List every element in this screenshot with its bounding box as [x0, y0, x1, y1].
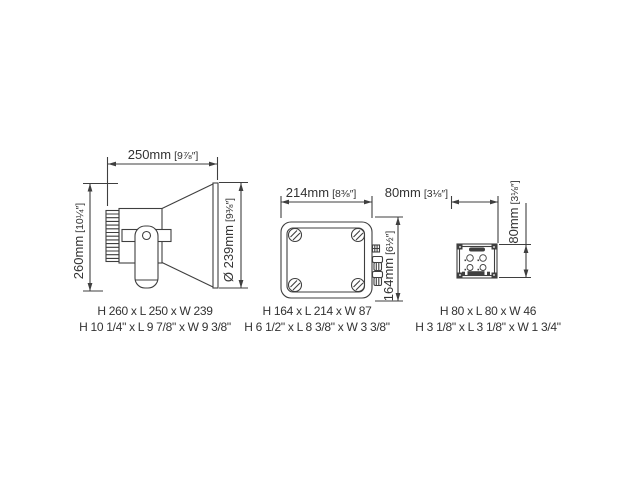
dimension-inch-value: [9⅞″]	[174, 149, 198, 164]
knob	[467, 255, 474, 262]
control-unit-outline	[457, 244, 497, 278]
horn-height-dimension	[83, 184, 118, 292]
screw-dot	[493, 274, 495, 276]
dimension-mm-value: 80mm	[385, 185, 421, 200]
arrowhead	[239, 280, 244, 288]
screw-hatch	[354, 231, 364, 241]
arrowhead	[88, 184, 93, 192]
unit-top-label-bar	[469, 248, 485, 252]
knob	[480, 265, 486, 271]
box-height-dimension-label: 164mm[6½″]	[381, 231, 397, 301]
horn-height-dimension-label: 260mm[10¼″]	[71, 195, 87, 287]
unit-width-dimension	[451, 196, 498, 243]
horn-width-dimension-label: 250mm[9⅞″]	[108, 147, 218, 164]
screw-circle	[289, 279, 302, 292]
arrowhead	[524, 245, 529, 253]
dimension-inch-value: [3⅛″]	[508, 180, 523, 204]
gland-ribs	[376, 263, 379, 271]
cable-gland-small	[373, 245, 380, 252]
knob-mark	[465, 260, 467, 262]
control-unit-caption: H 80 x L 80 x W 46 H 3 1/8" x L 3 1/8" x…	[382, 304, 594, 335]
screw-circle	[352, 229, 365, 242]
box-width-dimension-label: 214mm[8⅜″]	[271, 185, 371, 202]
screw-circle	[352, 279, 365, 292]
dimension-mm-value: 214mm	[286, 185, 329, 200]
side-mark	[462, 272, 465, 275]
arrowhead	[396, 217, 401, 225]
horn-rib-lines	[106, 214, 119, 258]
side-mark	[487, 272, 490, 275]
screw-dot	[459, 274, 461, 276]
knob	[467, 265, 473, 271]
screw-dot	[459, 246, 461, 248]
corner-screw	[352, 229, 365, 242]
horn-speaker-outline	[106, 183, 218, 288]
dimension-mm-value: 250mm	[128, 147, 171, 162]
arrowhead	[451, 200, 459, 205]
gland-ribs	[373, 245, 380, 252]
screw-hatch	[291, 281, 301, 291]
unit-bottom-label-bar	[462, 271, 490, 275]
corner-screw	[352, 279, 365, 292]
knob-mark	[478, 269, 480, 271]
technical-drawing-canvas	[0, 0, 640, 480]
dimension-inch-value: [9⅜″]	[223, 198, 238, 222]
knob-mark	[478, 260, 480, 262]
dimension-inch-value: [3⅛″]	[424, 187, 448, 202]
screw-hatch	[354, 281, 364, 291]
corner-screw	[289, 279, 302, 292]
screw-hatch	[291, 231, 301, 241]
knob	[480, 255, 487, 262]
technical-drawing-page: 250mm[9⅞″] 260mm[10¼″] Ø 239mm[9⅜″] 214m…	[0, 0, 640, 480]
caption-metric: H 80 x L 80 x W 46	[382, 304, 594, 320]
dimension-inch-value: [8⅜″]	[332, 187, 356, 202]
label-bar	[468, 271, 485, 275]
horn-flare-top	[162, 184, 213, 209]
unit-height-dimension-label: 80mm[3⅛″]	[506, 180, 522, 244]
gland-ribs	[376, 278, 379, 286]
amplifier-box-outline	[281, 222, 383, 298]
arrowhead	[524, 270, 529, 278]
corner-screw	[289, 229, 302, 242]
dimension-mm-value: 80mm	[506, 208, 521, 244]
dimension-inch-value: [6½″]	[383, 231, 398, 255]
arrowhead	[239, 183, 244, 191]
caption-imperial: H 3 1/8" x L 3 1/8" x W 1 3/4"	[382, 320, 594, 336]
dimension-mm-value: 260mm	[71, 236, 86, 279]
box-inner-lid	[287, 228, 365, 292]
dimension-inch-value: [10¼″]	[73, 203, 88, 233]
screw-dot	[493, 246, 495, 248]
arrowhead	[88, 283, 93, 291]
horn-width-dimension	[108, 157, 218, 206]
horn-bracket-pivot-knob	[143, 232, 151, 240]
dimension-mm-value: Ø 239mm	[221, 225, 236, 282]
horn-mouth-rim	[213, 183, 218, 288]
unit-width-dimension-label: 80mm[3⅛″]	[380, 185, 448, 202]
horn-flare-bottom	[162, 263, 213, 288]
horn-diameter-dimension-label: Ø 239mm[9⅜″]	[221, 192, 237, 288]
arrowhead	[490, 200, 498, 205]
dimension-mm-value: 164mm	[381, 258, 396, 301]
screw-circle	[289, 229, 302, 242]
knob-mark	[465, 269, 467, 271]
unit-knobs	[465, 255, 487, 271]
